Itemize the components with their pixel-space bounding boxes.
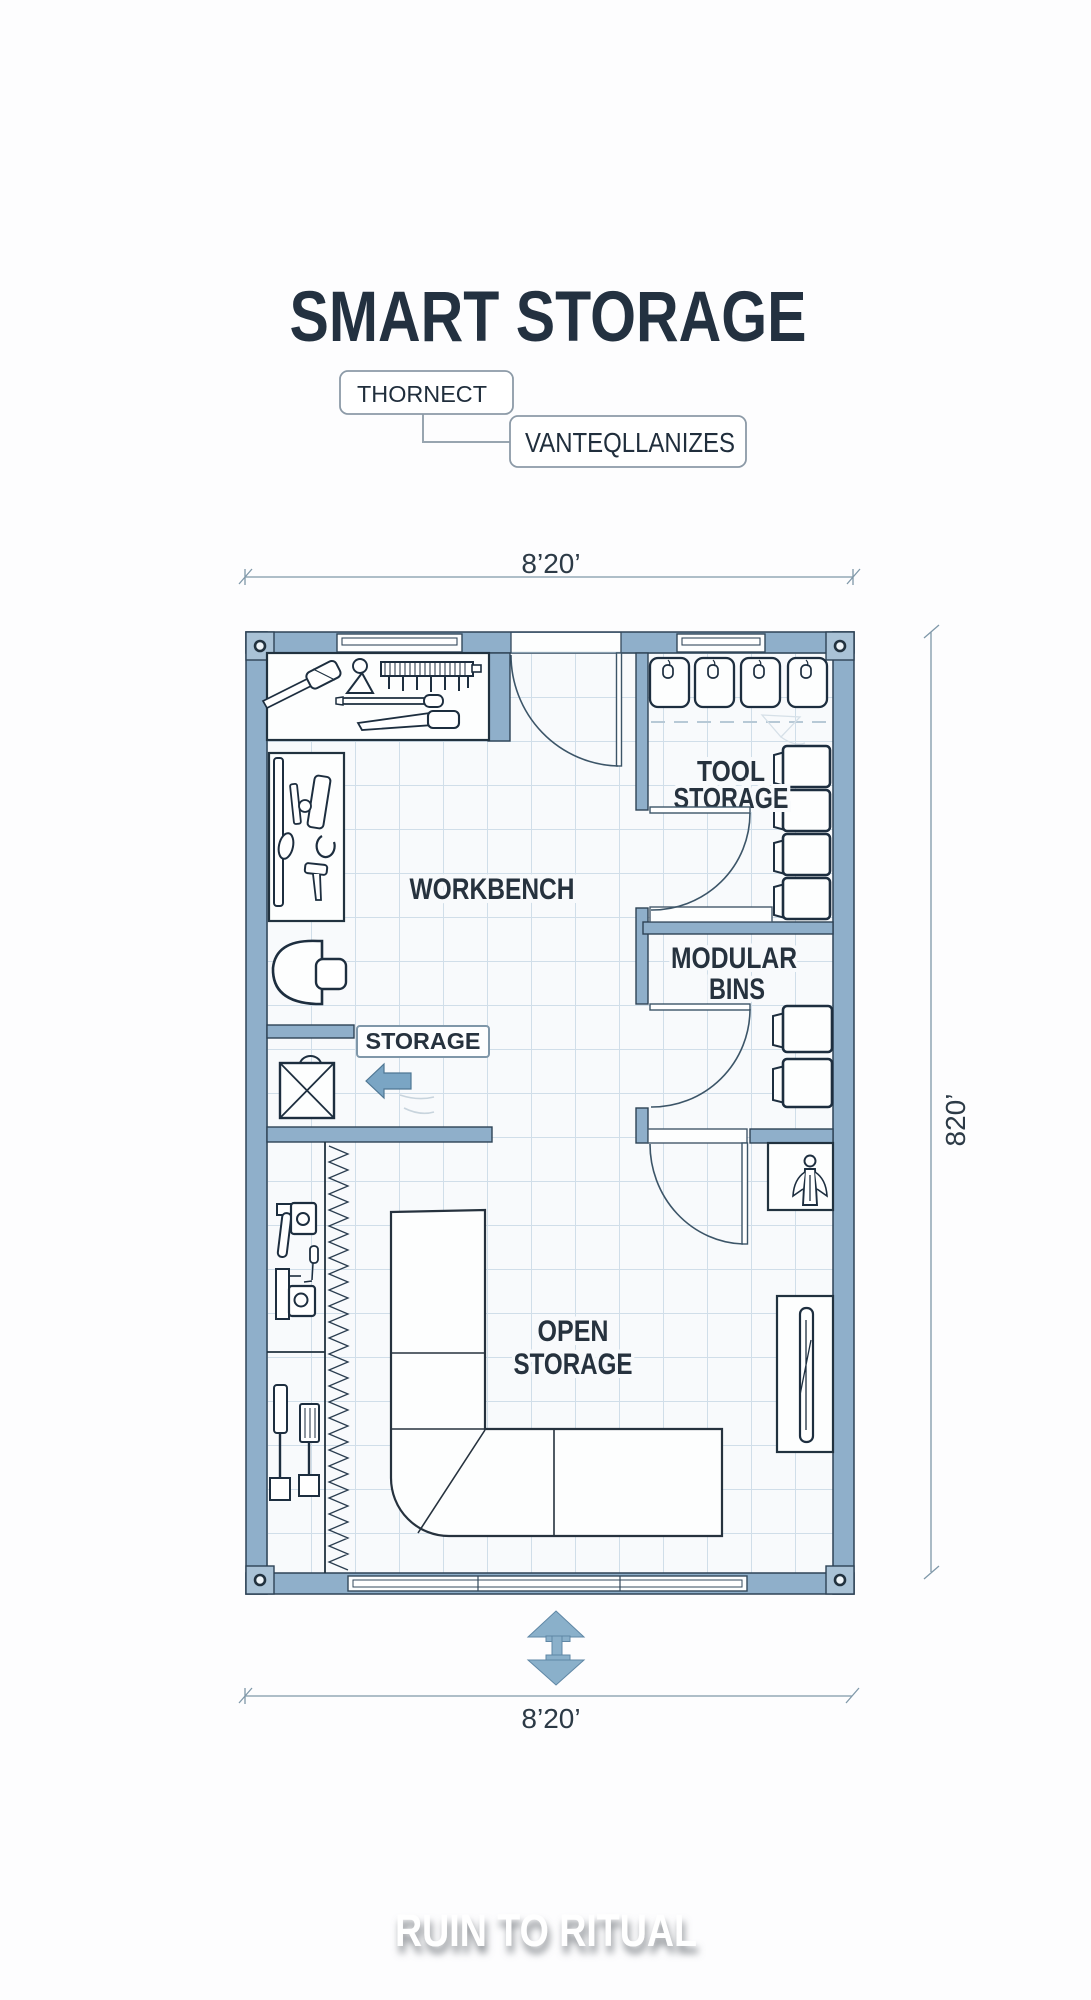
svg-text:SMART STORAGE: SMART STORAGE [290,278,807,357]
svg-text:8’20’: 8’20’ [521,548,580,579]
svg-text:THORNECT: THORNECT [357,381,487,407]
svg-text:STORAGE: STORAGE [514,1348,633,1381]
svg-text:8’20’: 8’20’ [521,1703,580,1734]
svg-text:MODULAR: MODULAR [671,942,797,975]
svg-text:OPEN: OPEN [538,1315,609,1348]
svg-text:WORKBENCH: WORKBENCH [410,873,575,906]
svg-text:STORAGE: STORAGE [366,1028,481,1054]
svg-text:VANTEQLLANIZES: VANTEQLLANIZES [525,427,735,458]
svg-text:820’: 820’ [940,1094,971,1147]
svg-text:BINS: BINS [709,973,765,1006]
svg-text:RUIN TO RITUAL: RUIN TO RITUAL [395,1905,697,1956]
